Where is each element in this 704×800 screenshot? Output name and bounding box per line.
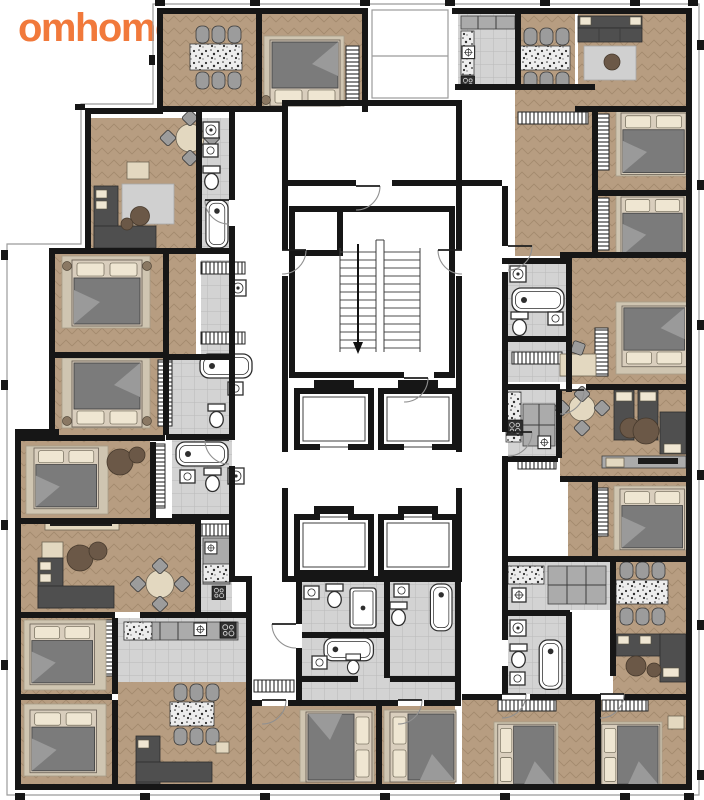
dining-chair bbox=[228, 26, 241, 43]
wardrobe bbox=[602, 700, 648, 711]
tv bbox=[638, 458, 678, 464]
elevator-bank bbox=[303, 397, 449, 567]
kitchen-counter bbox=[461, 16, 515, 29]
dining-chair bbox=[174, 728, 187, 745]
kitchen-counter-granite bbox=[508, 566, 544, 584]
kitchen-sink bbox=[538, 436, 551, 449]
wardrobe bbox=[512, 352, 562, 364]
dining-chair bbox=[636, 562, 649, 579]
toilet bbox=[510, 644, 527, 668]
bathroom-sink bbox=[510, 672, 525, 685]
dining-table bbox=[170, 702, 214, 726]
building-core bbox=[303, 240, 449, 567]
dining-chair bbox=[620, 562, 633, 579]
kitchen-sink bbox=[512, 588, 526, 602]
pouf bbox=[647, 663, 661, 677]
floor-plan-page: omhome bbox=[0, 0, 704, 800]
bed bbox=[270, 40, 340, 106]
dining-chair bbox=[556, 28, 569, 45]
dining-chair bbox=[636, 608, 649, 625]
dining-chair bbox=[174, 684, 187, 701]
wardrobe bbox=[201, 262, 245, 274]
kitchen-sink bbox=[194, 623, 207, 636]
bed bbox=[72, 361, 142, 427]
wardrobe bbox=[498, 700, 556, 711]
toilet bbox=[346, 654, 360, 674]
dining-chair bbox=[212, 26, 225, 43]
bathroom-sink bbox=[548, 312, 563, 325]
desk bbox=[560, 354, 596, 376]
kitchen-counter-granite bbox=[124, 622, 152, 640]
dining-table bbox=[518, 46, 570, 70]
dining-chair bbox=[524, 28, 537, 45]
bed bbox=[621, 197, 684, 256]
nightstand bbox=[63, 262, 72, 271]
bathroom-sink bbox=[394, 584, 409, 597]
pouf bbox=[626, 656, 646, 676]
toilet bbox=[390, 602, 407, 626]
bathroom-sink bbox=[203, 144, 218, 157]
bathtub bbox=[512, 288, 564, 312]
wardrobe bbox=[518, 112, 588, 124]
kitchen-counter-granite bbox=[203, 564, 230, 582]
nightstand bbox=[143, 417, 152, 426]
door-swing bbox=[272, 624, 296, 648]
sofa bbox=[38, 586, 114, 608]
bed bbox=[620, 489, 684, 550]
pouf bbox=[129, 447, 145, 463]
toilet bbox=[326, 584, 343, 608]
dining-chair bbox=[196, 72, 209, 89]
bed bbox=[602, 724, 660, 786]
light-shaft bbox=[372, 10, 448, 98]
elevator-cab bbox=[387, 523, 449, 567]
wardrobe bbox=[254, 680, 294, 692]
bathroom-sink bbox=[304, 586, 319, 599]
dining-chair bbox=[620, 608, 633, 625]
bed bbox=[72, 260, 142, 326]
bed bbox=[621, 113, 686, 174]
bed bbox=[34, 448, 98, 509]
bathroom-sink bbox=[180, 470, 195, 483]
stairwell bbox=[340, 240, 420, 354]
wardrobe bbox=[346, 46, 359, 104]
bed bbox=[30, 710, 97, 773]
bed bbox=[30, 624, 94, 685]
toilet bbox=[511, 312, 528, 336]
sofa bbox=[578, 28, 642, 42]
sofa bbox=[136, 762, 212, 782]
kitchen-sink bbox=[205, 542, 217, 554]
nightstand bbox=[262, 96, 271, 105]
elevator-cab bbox=[387, 397, 449, 441]
bathtub bbox=[539, 640, 562, 689]
pouf bbox=[89, 542, 107, 560]
nightstand bbox=[668, 716, 684, 729]
bed bbox=[498, 724, 556, 786]
dining-chair bbox=[196, 26, 209, 43]
side-table bbox=[121, 218, 133, 230]
elevator-cab bbox=[303, 397, 365, 441]
washing-machine bbox=[510, 620, 526, 636]
coffee-table bbox=[131, 207, 150, 226]
floor-plan-drawing bbox=[0, 0, 704, 800]
cooktop bbox=[212, 586, 226, 600]
wardrobe bbox=[201, 332, 245, 344]
dining-chair bbox=[652, 562, 665, 579]
bed bbox=[390, 712, 456, 782]
nightstand bbox=[63, 417, 72, 426]
bathtub bbox=[430, 584, 452, 631]
wardrobe bbox=[200, 524, 232, 536]
elevator-cab bbox=[303, 523, 365, 567]
toilet bbox=[208, 404, 225, 428]
kitchen-sink bbox=[462, 46, 475, 59]
dining-chair bbox=[212, 72, 225, 89]
bed bbox=[622, 306, 686, 367]
dining-chair bbox=[228, 72, 241, 89]
washing-machine bbox=[203, 122, 219, 138]
pouf bbox=[633, 418, 659, 444]
dining-chair bbox=[190, 684, 203, 701]
armchair bbox=[42, 542, 63, 558]
bathroom-sink bbox=[312, 656, 327, 669]
nightstand bbox=[143, 262, 152, 271]
dining-chair bbox=[190, 728, 203, 745]
dining-chair bbox=[652, 608, 665, 625]
wardrobe bbox=[595, 328, 608, 376]
toilet bbox=[203, 166, 220, 190]
cooktop bbox=[220, 622, 236, 638]
shower bbox=[350, 588, 376, 628]
bed bbox=[306, 712, 372, 782]
dining-table bbox=[190, 44, 242, 70]
armchair bbox=[127, 162, 149, 179]
dining-chair bbox=[540, 28, 553, 45]
pouf bbox=[604, 54, 620, 70]
dining-table bbox=[616, 580, 668, 604]
toilet bbox=[204, 468, 221, 492]
cooktop bbox=[507, 420, 522, 435]
side-table bbox=[216, 742, 229, 753]
dining-chair bbox=[206, 684, 219, 701]
